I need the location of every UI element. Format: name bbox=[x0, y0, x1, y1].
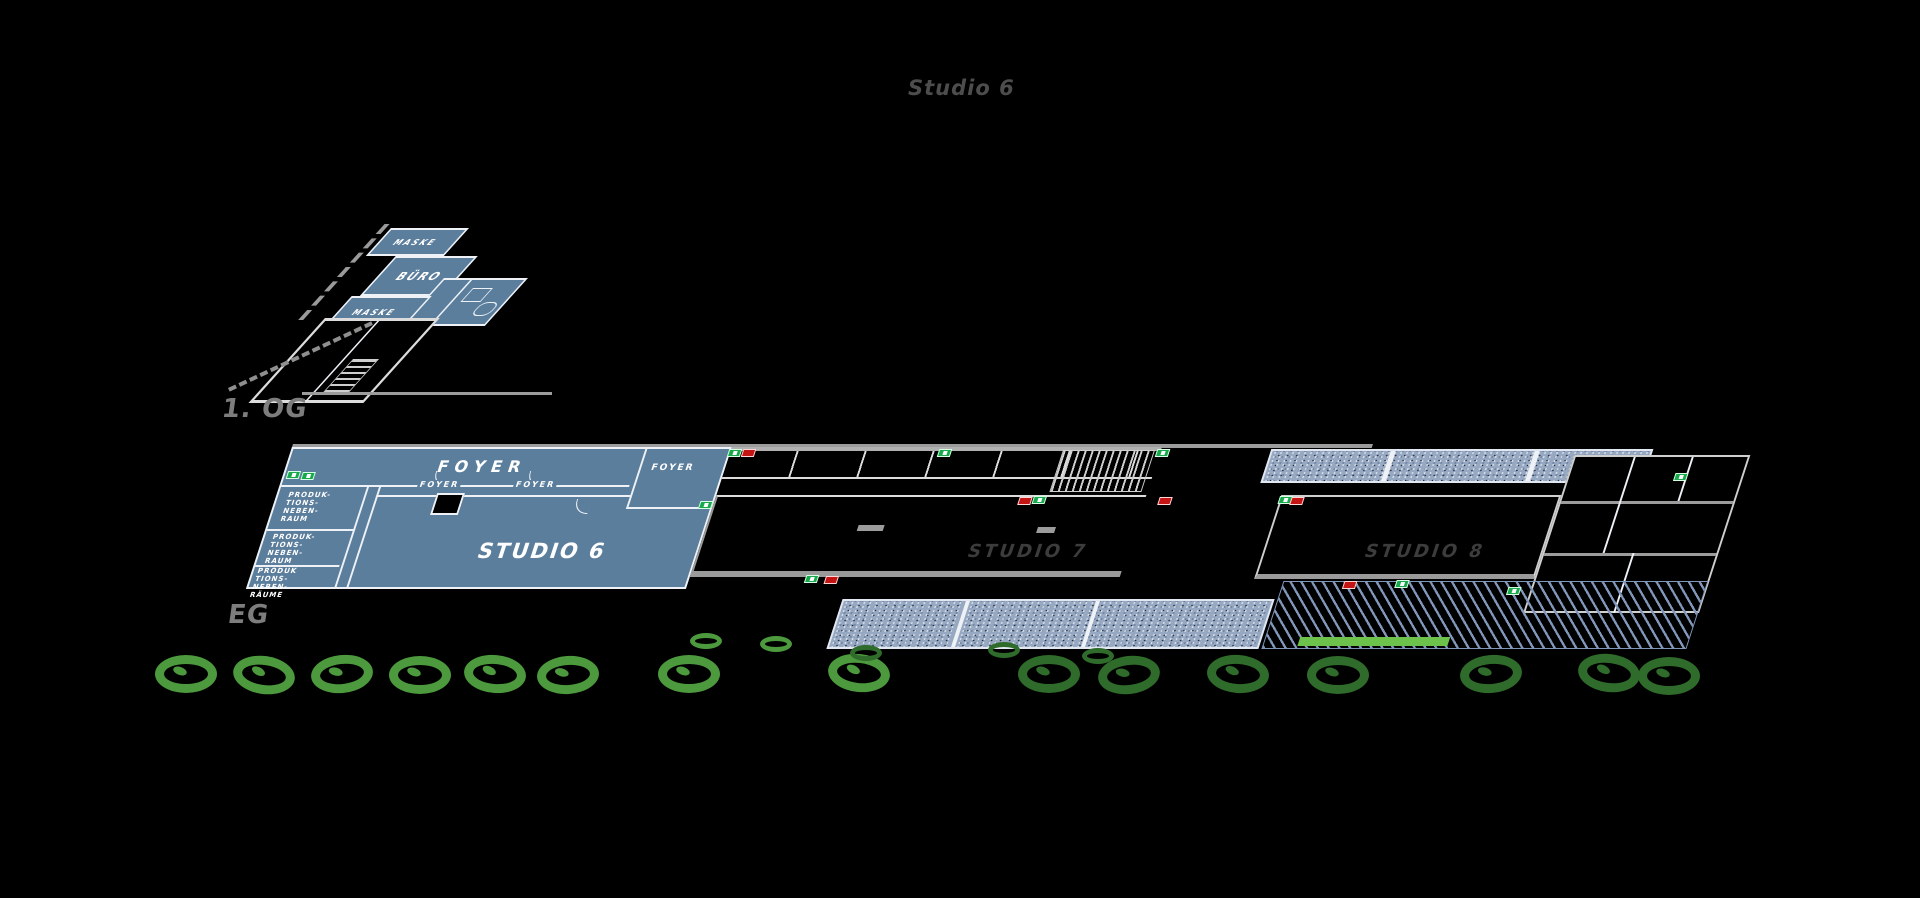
tree-icon bbox=[1307, 656, 1369, 694]
eg-studio7-label: STUDIO 7 bbox=[965, 541, 1091, 562]
og-room-buero-label: BÜRO bbox=[391, 270, 446, 283]
terrace-lower bbox=[826, 599, 1274, 649]
floorplan-eg: FOYER FOYER FOYER FOYER PRODUK- TIONS- N… bbox=[222, 447, 1757, 662]
eg-blue-section: FOYER FOYER FOYER FOYER PRODUK- TIONS- N… bbox=[246, 447, 732, 589]
exit-sign-icon bbox=[698, 501, 714, 509]
tree-icon bbox=[389, 656, 451, 694]
tree-icon bbox=[1458, 652, 1523, 695]
eg-foyer-small-2-label: FOYER bbox=[512, 480, 558, 489]
eg-produk-1-label: PRODUK- TIONS- NEBEN- RAUM bbox=[279, 491, 332, 523]
fire-door-icon bbox=[823, 576, 839, 584]
eg-studio6-label: STUDIO 6 bbox=[474, 539, 609, 563]
og-fixture-icon bbox=[460, 288, 493, 302]
bush-icon bbox=[690, 633, 722, 649]
fire-door-icon bbox=[1342, 581, 1358, 589]
bush-icon bbox=[760, 636, 792, 652]
fire-door-icon bbox=[741, 449, 757, 457]
lawn-strip bbox=[1297, 637, 1450, 646]
fire-door-icon bbox=[1017, 497, 1033, 505]
eg-produk-2-label: PRODUK- TIONS- NEBEN- RAUM bbox=[264, 533, 317, 565]
eg-foyer-small-1-label: FOYER bbox=[416, 480, 462, 489]
tree-icon bbox=[231, 652, 298, 698]
tree-icon bbox=[309, 652, 375, 696]
door-arc-icon bbox=[572, 499, 592, 514]
tree-icon bbox=[536, 654, 600, 696]
og-room-maske-1-label: MASKE bbox=[390, 238, 440, 247]
tree-icon bbox=[658, 655, 720, 693]
tree-icon bbox=[155, 655, 217, 693]
bush-icon bbox=[1082, 648, 1114, 664]
exit-sign-icon bbox=[804, 575, 820, 583]
eg-shaft bbox=[430, 493, 465, 515]
floor-label-1og: 1. OG bbox=[220, 394, 310, 424]
fire-door-icon bbox=[1157, 497, 1173, 505]
exit-sign-icon bbox=[1506, 587, 1522, 595]
tree-icon bbox=[1638, 657, 1700, 695]
eg-produk-3-label: PRODUK TIONS- NEBEN- RÄUME bbox=[249, 567, 299, 599]
eg-studio7-room: STUDIO 7 bbox=[690, 495, 1147, 577]
og-dark-rooms bbox=[248, 318, 440, 403]
tree-icon bbox=[1018, 655, 1080, 693]
eg-studio8-room: STUDIO 8 bbox=[1254, 495, 1561, 579]
eg-foyer-main-label: FOYER bbox=[435, 457, 530, 476]
eg-studio8-label: STUDIO 8 bbox=[1362, 541, 1488, 562]
og-fixture-icon bbox=[470, 302, 501, 316]
floorplan-1og: MASKE BÜRO MASKE bbox=[154, 218, 600, 413]
exit-sign-icon bbox=[1394, 580, 1410, 588]
tree-icon bbox=[462, 652, 527, 695]
exit-sign-icon bbox=[937, 449, 953, 457]
floor-label-eg: EG bbox=[226, 600, 271, 630]
drawing-title: Studio 6 bbox=[908, 76, 1015, 100]
tree-icon bbox=[1576, 650, 1642, 695]
bush-icon bbox=[988, 642, 1020, 658]
tree-icon bbox=[1206, 653, 1270, 695]
exit-sign-icon bbox=[1155, 449, 1171, 457]
exit-sign-icon bbox=[1031, 496, 1047, 504]
fire-door-icon bbox=[1289, 497, 1305, 505]
exit-sign-icon bbox=[300, 472, 316, 480]
bush-icon bbox=[850, 645, 882, 661]
exit-sign-icon bbox=[1673, 473, 1689, 481]
og-baseline bbox=[302, 392, 552, 395]
eg-foyer-right-label: FOYER bbox=[650, 463, 696, 473]
og-stairs-icon bbox=[322, 359, 379, 393]
stairs-icon bbox=[1049, 450, 1155, 492]
exit-sign-icon bbox=[286, 471, 302, 479]
og-room-maske-2-label: MASKE bbox=[349, 308, 399, 317]
